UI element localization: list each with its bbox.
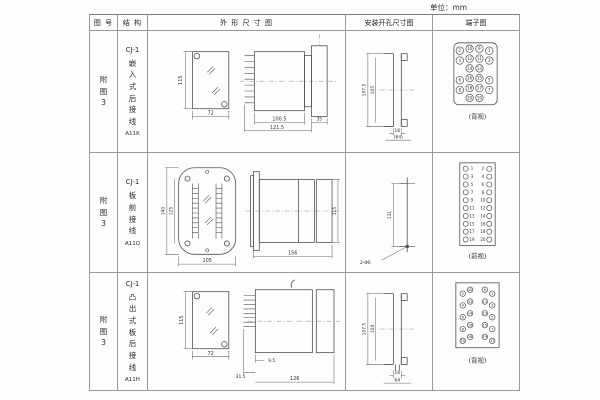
structure-label: 嵌入式后接线 <box>129 58 137 128</box>
pin: 19 <box>477 95 482 100</box>
install-drawing-a11k: 107.5 105 16 (64) <box>346 32 432 152</box>
model-label: CJ-1 <box>126 280 140 288</box>
row3-install-cell: 107.5 104 16 64 <box>346 273 433 391</box>
header-terminal-diagram: 端子图 <box>433 15 520 31</box>
pin: 20 <box>480 237 485 242</box>
dim-height: 115 <box>179 315 185 324</box>
pin: 14 <box>480 213 485 218</box>
hole-size-label: 2-Φ6 <box>360 260 371 266</box>
row2-install-cell: 131 2-Φ6 <box>346 153 433 273</box>
pin: 19 <box>470 237 475 242</box>
pin: 8 <box>462 327 464 331</box>
pin: 8 <box>459 87 462 92</box>
pin: 20 <box>467 95 472 100</box>
pin: 9 <box>478 46 481 51</box>
side-view: 100.5 35 121.5 <box>240 33 338 131</box>
view-caption: (前视) <box>469 251 487 260</box>
pin: 15 <box>477 75 482 80</box>
pin: 3 <box>491 303 493 307</box>
dim-inner-width: 16 <box>395 369 401 375</box>
dim-outer-height: 107.5 <box>361 322 367 335</box>
pin: 5 <box>488 77 491 82</box>
figure-no: 附图3 <box>100 314 108 349</box>
pin: 14 <box>467 65 472 70</box>
figure-no: 附图3 <box>100 74 108 109</box>
pin: 2 <box>482 166 485 171</box>
pin: 1 <box>488 48 491 53</box>
unit-label: 单位：mm <box>430 2 467 13</box>
pin: 7 <box>491 327 493 331</box>
dim-hole-spacing: 131 <box>387 210 393 219</box>
row3-structure-cell: CJ-1 凸出式板后接线 A11H <box>118 273 148 391</box>
row1-outline-cell: 115 72 100.5 35 121.5 <box>148 31 346 153</box>
datasheet-page: 单位：mm 图 号 结 构 外 形 尺 寸 图 安装开孔尺寸图 端子图 附图3 … <box>0 0 600 400</box>
dim-offset: 9.5 <box>268 357 275 363</box>
dim-width: 72 <box>207 351 213 357</box>
row3-terminal-cell: 2 10 4 12 6 14 8 16 20 18 9 1 11 3 13 5 <box>433 273 520 391</box>
dim-inner-width: 16 <box>395 127 401 133</box>
pin: 13 <box>470 213 475 218</box>
row1-structure-cell: CJ-1 嵌入式后接线 A11K <box>118 31 148 153</box>
terminal-pins: 2 10 4 12 6 14 8 16 20 18 9 1 11 3 13 5 <box>460 286 495 343</box>
pin: 10 <box>467 46 472 51</box>
structure-label: 板前接线 <box>129 190 137 237</box>
pin: 20 <box>460 339 464 343</box>
pin: 16 <box>468 323 473 327</box>
pin: 12 <box>468 299 472 303</box>
model-label: CJ-1 <box>126 46 140 54</box>
outline-drawing-a11k: 115 72 100.5 35 121.5 <box>148 32 345 152</box>
pin: 13 <box>477 65 482 70</box>
model-code: A11Q <box>125 241 140 247</box>
pin: 17 <box>477 85 482 90</box>
dim-width: 105 <box>202 258 211 264</box>
side-view: 115 156 <box>246 171 340 258</box>
row2-structure-cell: CJ-1 板前接线 A11Q <box>118 153 148 273</box>
row1-figure-no-cell: 附图3 <box>90 31 118 153</box>
pin: 18 <box>467 85 472 90</box>
dimension-table: 图 号 结 构 外 形 尺 寸 图 安装开孔尺寸图 端子图 附图3 CJ-1 嵌… <box>89 14 520 391</box>
pin: 17 <box>470 229 475 234</box>
pin: 2 <box>462 291 464 295</box>
header-structure: 结 构 <box>118 15 148 31</box>
dim-outer-height: 107.5 <box>361 83 367 96</box>
front-view: 140 125 105 <box>160 167 235 265</box>
pin: 6 <box>462 315 465 319</box>
pin: 11 <box>483 299 487 303</box>
row1-terminal-cell: 2 10 9 1 4 12 11 3 14 13 6 16 15 5 8 18 <box>433 31 520 153</box>
pin: 15 <box>470 221 475 226</box>
view-caption: (背视) <box>469 111 487 120</box>
structure-label: 凸出式板后接线 <box>129 292 137 373</box>
front-view: 115 72 <box>178 51 229 119</box>
pin: 18 <box>468 335 472 339</box>
pin: 15 <box>483 323 487 327</box>
pin: 16 <box>480 221 485 226</box>
pin: 13 <box>483 311 487 315</box>
cutout-profile: 107.5 105 16 (64) <box>361 53 415 140</box>
terminal-pins: 1 2 3 4 5 6 7 8 9 10 11 12 13 14 15 16 1 <box>463 166 492 242</box>
dim-outer-width: (64) <box>394 134 403 140</box>
pin: 10 <box>480 197 485 202</box>
outline-drawing-a11q: 140 125 105 115 156 <box>148 154 345 272</box>
pin: 17 <box>490 339 494 343</box>
row1-install-cell: 107.5 105 16 (64) <box>346 31 433 153</box>
pin: 2 <box>459 48 462 53</box>
pin: 14 <box>468 311 473 315</box>
pin: 3 <box>471 174 474 179</box>
dim-inner-height: 125 <box>169 206 175 215</box>
pin: 12 <box>467 56 472 61</box>
pin: 11 <box>470 205 475 210</box>
pin: 3 <box>488 58 491 63</box>
row2-outline-cell: 140 125 105 115 156 <box>148 153 346 273</box>
header-outline-dims: 外 形 尺 寸 图 <box>148 15 346 31</box>
side-view: 9.5 31.5 126 <box>236 279 340 383</box>
install-drawing-a11q: 131 2-Φ6 <box>346 154 432 272</box>
terminal-diagram-a11q: 1 2 3 4 5 6 7 8 9 10 11 12 13 14 15 16 1 <box>433 154 519 272</box>
row3-figure-no-cell: 附图3 <box>90 273 118 391</box>
dim-outer-height: 140 <box>160 206 166 215</box>
view-caption: (背视) <box>469 355 487 364</box>
pin: 19 <box>483 335 487 339</box>
dim-terminal-depth: 31.5 <box>236 374 246 380</box>
dim-flange-depth: 35 <box>316 116 322 122</box>
pin: 4 <box>482 174 485 179</box>
dim-side-height: 115 <box>332 206 338 215</box>
dim-length: 156 <box>288 250 297 256</box>
pin: 7 <box>488 87 491 92</box>
model-code: A11H <box>125 377 140 383</box>
dim-width: 72 <box>207 110 213 116</box>
pin: 5 <box>471 181 474 186</box>
row2-figure-no-cell: 附图3 <box>90 153 118 273</box>
header-figure-no: 图 号 <box>90 15 118 31</box>
terminal-diagram-a11h: 2 10 4 12 6 14 8 16 20 18 9 1 11 3 13 5 <box>433 274 519 390</box>
model-label: CJ-1 <box>126 178 140 186</box>
pin: 9 <box>484 288 486 292</box>
outline-drawing-a11h: 115 72 9.5 31.5 126 <box>148 274 345 390</box>
terminal-pins: 2 10 9 1 4 12 11 3 14 13 6 16 15 5 8 18 <box>456 44 493 101</box>
dim-total-length: 126 <box>290 376 299 382</box>
pin: 7 <box>471 189 474 194</box>
dim-outer-width: 64 <box>395 377 401 383</box>
figure-no: 附图3 <box>100 195 108 230</box>
dim-height: 115 <box>178 75 184 84</box>
pin: 9 <box>471 197 474 202</box>
model-code: A11K <box>125 131 139 137</box>
terminal-diagram-a11k: 2 10 9 1 4 12 11 3 14 13 6 16 15 5 8 18 <box>433 32 519 152</box>
pin: 10 <box>468 288 472 292</box>
pin: 12 <box>480 205 485 210</box>
header-install-dims: 安装开孔尺寸图 <box>346 15 433 31</box>
pin: 4 <box>459 58 462 63</box>
install-drawing-a11h: 107.5 104 16 64 <box>346 274 432 390</box>
row3-outline-cell: 115 72 9.5 31.5 126 <box>148 273 346 391</box>
dim-total-length: 121.5 <box>270 124 284 130</box>
pin: 4 <box>462 303 465 307</box>
dim-body-length: 100.5 <box>272 116 286 122</box>
dim-inner-height: 104 <box>370 324 376 333</box>
pin: 18 <box>480 229 485 234</box>
pin: 8 <box>482 189 485 194</box>
pin: 6 <box>459 77 462 82</box>
pin: 16 <box>467 75 472 80</box>
cutout-profile: 107.5 104 16 64 <box>361 293 415 383</box>
row2-terminal-cell: 1 2 3 4 5 6 7 8 9 10 11 12 13 14 15 16 1 <box>433 153 520 273</box>
pin: 1 <box>491 291 493 295</box>
front-view: 115 72 <box>179 291 229 359</box>
pin: 6 <box>482 181 485 186</box>
pin: 11 <box>477 56 482 61</box>
hole-layout: 131 2-Φ6 <box>360 177 415 266</box>
pin: 5 <box>491 315 493 319</box>
pin: 1 <box>471 166 474 171</box>
dim-inner-height: 105 <box>370 85 376 94</box>
